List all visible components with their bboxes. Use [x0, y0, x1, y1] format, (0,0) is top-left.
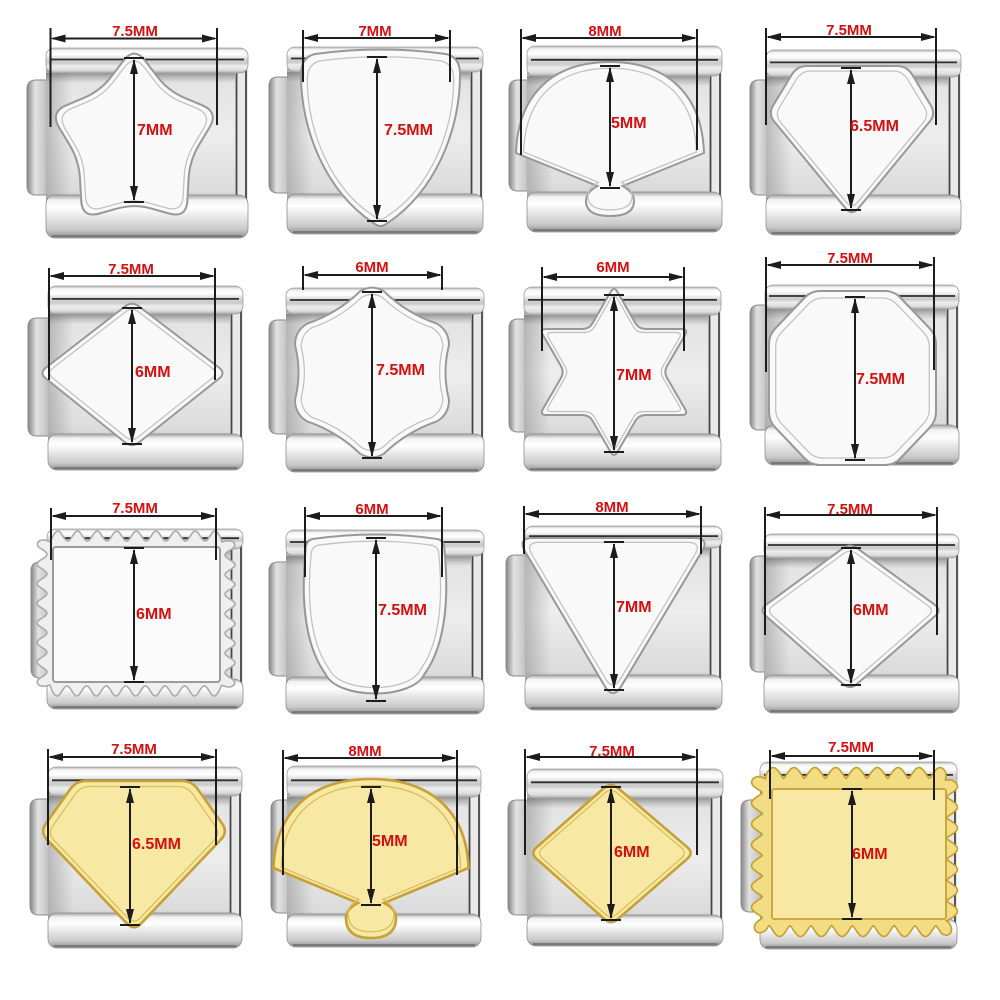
svg-text:7.5MM: 7.5MM — [376, 362, 425, 379]
svg-text:7.5MM: 7.5MM — [112, 23, 158, 40]
svg-text:6.5MM: 6.5MM — [132, 836, 181, 853]
svg-text:6MM: 6MM — [853, 602, 889, 619]
svg-text:7MM: 7MM — [358, 23, 391, 40]
svg-text:7.5MM: 7.5MM — [828, 739, 874, 756]
svg-text:8MM: 8MM — [348, 743, 381, 760]
svg-text:7.5MM: 7.5MM — [108, 261, 154, 278]
svg-text:7MM: 7MM — [616, 367, 652, 384]
svg-text:6MM: 6MM — [852, 846, 888, 863]
svg-text:7.5MM: 7.5MM — [856, 371, 905, 388]
svg-text:5MM: 5MM — [611, 115, 647, 132]
svg-text:7.5MM: 7.5MM — [827, 501, 873, 518]
svg-text:6MM: 6MM — [355, 501, 388, 518]
svg-text:6MM: 6MM — [596, 259, 629, 276]
svg-text:7.5MM: 7.5MM — [589, 743, 635, 760]
svg-text:7.5MM: 7.5MM — [378, 602, 427, 619]
svg-text:6MM: 6MM — [135, 364, 171, 381]
svg-text:7MM: 7MM — [137, 122, 173, 139]
svg-text:6.5MM: 6.5MM — [850, 118, 899, 135]
svg-text:7MM: 7MM — [616, 599, 652, 616]
svg-text:7.5MM: 7.5MM — [112, 500, 158, 517]
svg-text:7.5MM: 7.5MM — [384, 122, 433, 139]
svg-text:6MM: 6MM — [136, 606, 172, 623]
svg-text:6MM: 6MM — [614, 844, 650, 861]
svg-text:6MM: 6MM — [355, 259, 388, 276]
svg-text:5MM: 5MM — [372, 833, 408, 850]
svg-text:7.5MM: 7.5MM — [826, 22, 872, 39]
svg-text:8MM: 8MM — [595, 499, 628, 516]
svg-text:7.5MM: 7.5MM — [827, 250, 873, 267]
svg-text:7.5MM: 7.5MM — [111, 741, 157, 758]
svg-text:8MM: 8MM — [588, 23, 621, 40]
